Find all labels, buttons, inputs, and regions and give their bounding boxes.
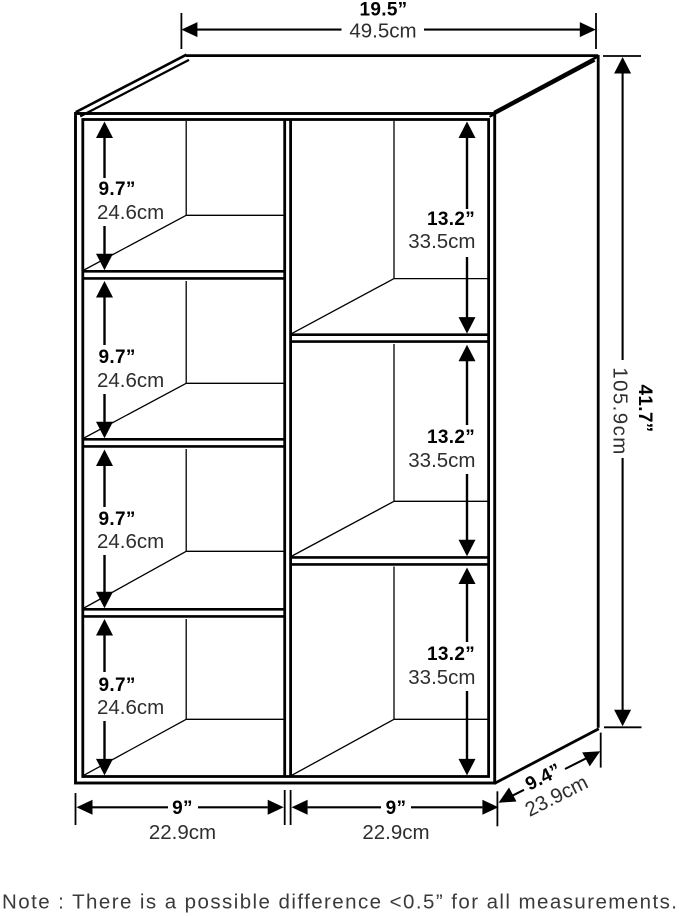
svg-text:24.6cm: 24.6cm <box>97 201 164 224</box>
svg-text:22.9cm: 22.9cm <box>362 821 429 844</box>
svg-text:13.2”: 13.2” <box>427 644 475 665</box>
svg-text:41.7”: 41.7” <box>634 385 655 433</box>
svg-text:9.7”: 9.7” <box>99 179 136 200</box>
svg-text:33.5cm: 33.5cm <box>408 666 475 689</box>
svg-text:9”: 9” <box>386 798 407 819</box>
svg-text:22.9cm: 22.9cm <box>149 821 216 844</box>
svg-text:19.5”: 19.5” <box>360 0 408 21</box>
svg-text:9.7”: 9.7” <box>99 347 136 368</box>
svg-text:13.2”: 13.2” <box>427 427 475 448</box>
svg-text:24.6cm: 24.6cm <box>97 369 164 392</box>
svg-text:9.7”: 9.7” <box>99 509 136 530</box>
svg-text:33.5cm: 33.5cm <box>408 230 475 253</box>
svg-text:33.5cm: 33.5cm <box>408 449 475 472</box>
svg-text:49.5cm: 49.5cm <box>349 20 416 43</box>
svg-text:9.7”: 9.7” <box>99 675 136 696</box>
svg-text:9”: 9” <box>172 798 193 819</box>
svg-text:13.2”: 13.2” <box>427 209 475 230</box>
svg-text:24.6cm: 24.6cm <box>97 530 164 553</box>
svg-text:24.6cm: 24.6cm <box>97 696 164 719</box>
svg-text:Note : There is a possible dif: Note : There is a possible difference <0… <box>2 891 677 914</box>
svg-text:105.9cm: 105.9cm <box>609 367 632 455</box>
